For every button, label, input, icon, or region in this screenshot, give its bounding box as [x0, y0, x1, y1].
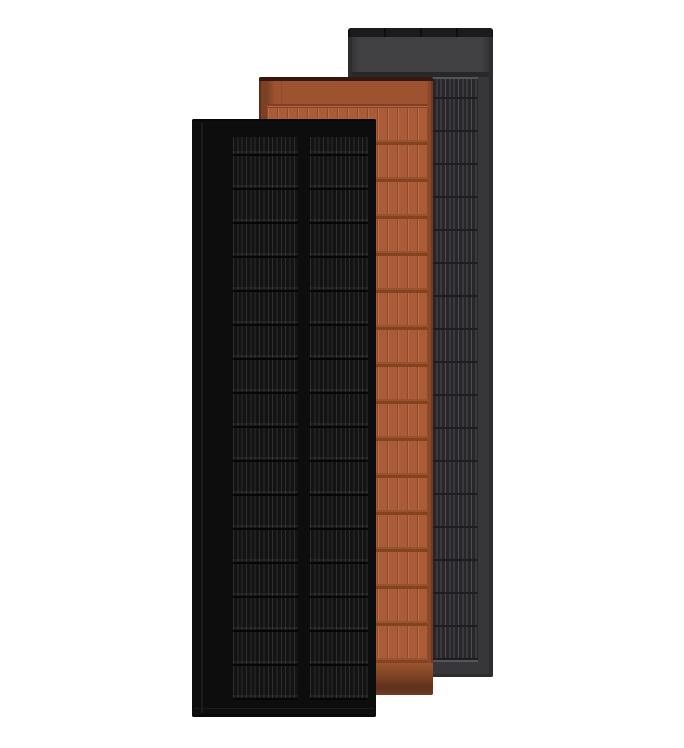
terracotta-panel-right-edge	[428, 81, 433, 663]
black-panel-bottom-edge	[192, 714, 376, 717]
terracotta-panel-header-band	[259, 81, 433, 104]
gray-panel-right-edge	[489, 37, 493, 677]
solar-panel-black	[192, 119, 376, 717]
black-panel-cell-grid-right	[310, 137, 368, 700]
gray-panel-header-band	[348, 37, 493, 72]
black-panel-bottom-seam	[194, 708, 374, 709]
black-panel-rail-seam	[201, 123, 203, 713]
black-panel-cell-area	[233, 137, 368, 700]
product-image-solar-panels	[0, 0, 684, 748]
terracotta-panel-header-seam	[281, 81, 282, 104]
black-panel-top-edge	[192, 119, 376, 121]
gray-panel-top-frame	[348, 28, 493, 37]
black-panel-cell-grid-left	[233, 137, 298, 700]
